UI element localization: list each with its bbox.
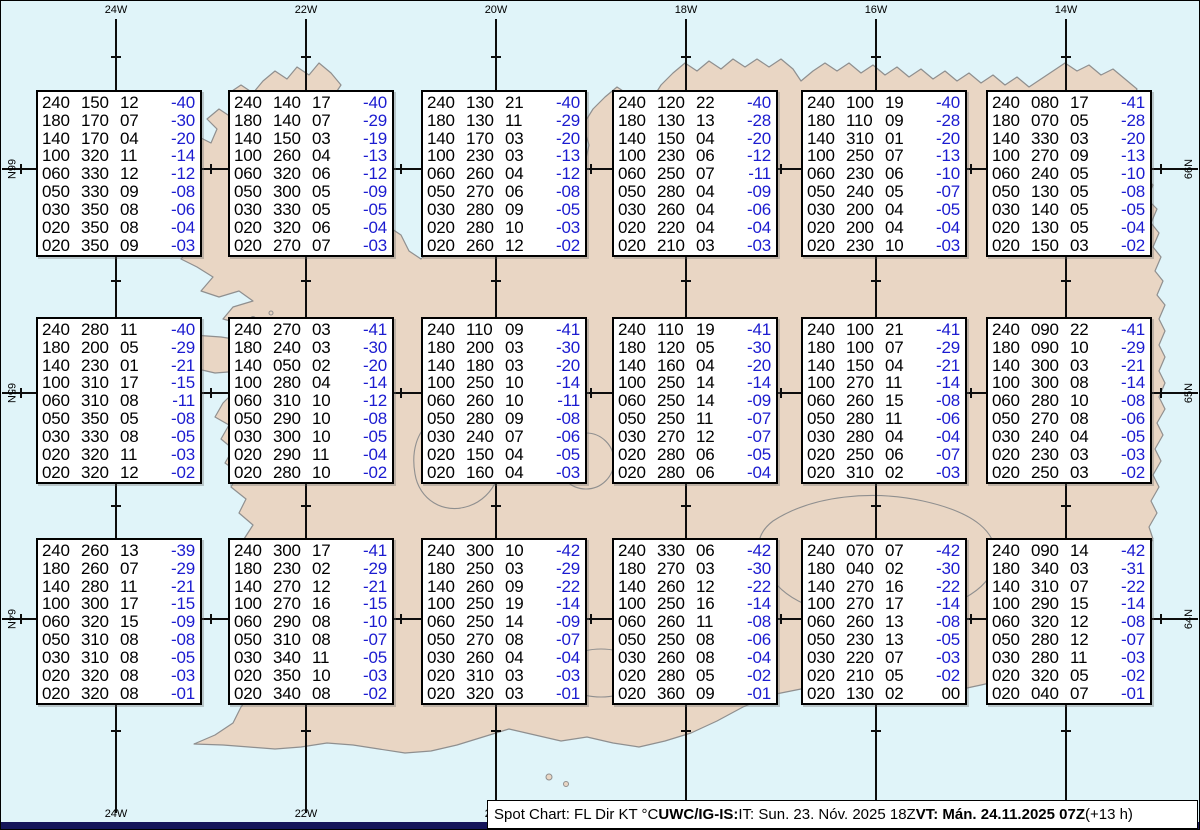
wind-speed-kt: 07	[885, 649, 916, 666]
wind-speed-kt: 08	[120, 428, 151, 445]
temperature-c: -03	[727, 237, 771, 254]
temperature-c: -04	[727, 464, 771, 481]
wind-direction: 320	[81, 685, 120, 702]
temperature-c: -22	[727, 578, 771, 595]
spot-row: 05035005-08	[42, 410, 195, 427]
temperature-c: -11	[151, 392, 195, 409]
flight-level: 060	[42, 613, 81, 630]
spot-row: 03028004-04	[807, 428, 960, 445]
spot-row: 14027012-21	[234, 578, 387, 595]
spot-row: 24033006-42	[618, 542, 771, 559]
flight-level: 180	[807, 339, 846, 356]
wind-speed-kt: 12	[696, 428, 727, 445]
flight-level: 060	[992, 392, 1031, 409]
wind-speed-kt: 04	[312, 147, 343, 164]
temperature-c: -06	[1101, 410, 1145, 427]
wind-speed-kt: 19	[885, 94, 916, 111]
flight-level: 060	[234, 165, 273, 182]
flight-level: 020	[42, 237, 81, 254]
wind-direction: 040	[846, 560, 885, 577]
wind-speed-kt: 05	[120, 410, 151, 427]
spot-row: 10023003-13	[427, 147, 580, 164]
spot-row: 24008017-41	[992, 94, 1145, 111]
flight-level: 100	[807, 147, 846, 164]
wind-speed-kt: 03	[505, 560, 536, 577]
flight-level: 050	[992, 183, 1031, 200]
wind-speed-kt: 03	[1070, 357, 1101, 374]
flight-level: 020	[427, 667, 466, 684]
wind-speed-kt: 09	[505, 201, 536, 218]
wind-direction: 280	[657, 446, 696, 463]
flight-level: 020	[992, 237, 1031, 254]
temperature-c: -08	[151, 631, 195, 648]
temperature-c: -10	[343, 613, 387, 630]
wind-speed-kt: 17	[1070, 94, 1101, 111]
chart-info-prefix: Spot Chart: FL Dir KT °C	[494, 806, 658, 823]
wind-direction: 130	[846, 685, 885, 702]
spot-row: 05023013-05	[807, 631, 960, 648]
spot-row: 24013021-40	[427, 94, 580, 111]
wind-direction: 240	[273, 339, 312, 356]
spot-row: 02021003-03	[618, 237, 771, 254]
wind-direction: 250	[466, 560, 505, 577]
spot-row: 14023001-21	[42, 357, 195, 374]
wind-speed-kt: 21	[505, 94, 536, 111]
wind-direction: 280	[466, 201, 505, 218]
flight-level: 180	[427, 560, 466, 577]
wind-direction: 090	[1031, 339, 1070, 356]
temperature-c: -08	[536, 410, 580, 427]
wind-speed-kt: 08	[120, 392, 151, 409]
flight-level: 180	[807, 560, 846, 577]
flight-level: 140	[807, 357, 846, 374]
temperature-c: -15	[343, 595, 387, 612]
wind-direction: 350	[81, 237, 120, 254]
flight-level: 060	[42, 165, 81, 182]
wind-direction: 130	[466, 94, 505, 111]
temperature-c: -07	[1101, 631, 1145, 648]
wind-direction: 250	[466, 613, 505, 630]
wind-direction: 140	[273, 112, 312, 129]
spot-row: 02032008-03	[42, 667, 195, 684]
spot-row: 03033005-05	[234, 201, 387, 218]
spot-row: 18013011-29	[427, 112, 580, 129]
spot-row: 03028009-05	[427, 201, 580, 218]
spot-table: 24007007-4218004002-3014027016-221002701…	[801, 538, 967, 705]
flight-level: 060	[42, 392, 81, 409]
flight-level: 100	[992, 595, 1031, 612]
wind-speed-kt: 08	[1070, 374, 1101, 391]
wind-speed-kt: 14	[696, 374, 727, 391]
wind-speed-kt: 07	[885, 147, 916, 164]
spot-table: 24010019-4018011009-2814031001-201002500…	[801, 90, 967, 257]
wind-direction: 270	[846, 374, 885, 391]
spot-table: 24009022-4118009010-2914030003-211003000…	[986, 317, 1152, 484]
spot-row: 03030010-05	[234, 428, 387, 445]
wind-speed-kt: 03	[505, 130, 536, 147]
wind-speed-kt: 09	[120, 183, 151, 200]
wind-speed-kt: 03	[505, 339, 536, 356]
spot-row: 06024005-10	[992, 165, 1145, 182]
temperature-c: -14	[536, 374, 580, 391]
wind-direction: 350	[81, 410, 120, 427]
temperature-c: -13	[1101, 147, 1145, 164]
temperature-c: -13	[343, 147, 387, 164]
spot-tables-layer: 24015012-4018017007-3014017004-201003201…	[1, 1, 1199, 829]
flight-level: 100	[427, 147, 466, 164]
wind-speed-kt: 09	[505, 321, 536, 338]
wind-speed-kt: 07	[1070, 685, 1101, 702]
spot-row: 18007005-28	[992, 112, 1145, 129]
spot-table: 24027003-4118024003-3014005002-201002800…	[228, 317, 394, 484]
wind-direction: 220	[657, 219, 696, 236]
wind-speed-kt: 07	[312, 112, 343, 129]
wind-speed-kt: 07	[312, 237, 343, 254]
temperature-c: -09	[727, 392, 771, 409]
flight-level: 240	[992, 542, 1031, 559]
spot-row: 10032011-14	[42, 147, 195, 164]
spot-row: 18020003-30	[427, 339, 580, 356]
spot-row: 02031002-03	[807, 464, 960, 481]
temperature-c: -30	[151, 112, 195, 129]
wind-direction: 160	[466, 464, 505, 481]
spot-row: 03033008-05	[42, 428, 195, 445]
wind-speed-kt: 12	[1070, 613, 1101, 630]
flight-level: 050	[42, 631, 81, 648]
wind-speed-kt: 17	[120, 374, 151, 391]
wind-speed-kt: 14	[696, 392, 727, 409]
flight-level: 240	[427, 321, 466, 338]
spot-row: 06028010-08	[992, 392, 1145, 409]
temperature-c: -14	[1101, 374, 1145, 391]
temperature-c: -07	[343, 631, 387, 648]
flight-level: 050	[992, 631, 1031, 648]
flight-level: 100	[992, 147, 1031, 164]
wind-speed-kt: 03	[312, 339, 343, 356]
flight-level: 140	[618, 357, 657, 374]
temperature-c: -14	[727, 374, 771, 391]
temperature-c: -07	[916, 183, 960, 200]
temperature-c: -07	[916, 446, 960, 463]
flight-level: 060	[807, 392, 846, 409]
spot-row: 06025014-09	[427, 613, 580, 630]
flight-level: 030	[992, 201, 1031, 218]
flight-level: 180	[618, 560, 657, 577]
wind-speed-kt: 10	[312, 464, 343, 481]
wind-speed-kt: 14	[505, 613, 536, 630]
wind-direction: 170	[81, 112, 120, 129]
wind-direction: 290	[1031, 595, 1070, 612]
wind-speed-kt: 05	[885, 667, 916, 684]
spot-row: 24014017-40	[234, 94, 387, 111]
spot-row: 02025006-07	[807, 446, 960, 463]
spot-row: 10027016-15	[234, 595, 387, 612]
wind-speed-kt: 04	[885, 219, 916, 236]
wind-speed-kt: 08	[696, 649, 727, 666]
spot-row: 03031008-05	[42, 649, 195, 666]
flight-level: 240	[42, 321, 81, 338]
temperature-c: -03	[916, 464, 960, 481]
temperature-c: -08	[151, 410, 195, 427]
flight-level: 050	[618, 631, 657, 648]
spot-row: 03034011-05	[234, 649, 387, 666]
wind-direction: 330	[81, 183, 120, 200]
wind-direction: 260	[846, 392, 885, 409]
flight-level: 030	[618, 649, 657, 666]
spot-row: 24009014-42	[992, 542, 1145, 559]
wind-direction: 340	[273, 685, 312, 702]
wind-speed-kt: 13	[885, 631, 916, 648]
wind-speed-kt: 21	[885, 321, 916, 338]
wind-speed-kt: 12	[312, 578, 343, 595]
chart-info-valid-time: VT: Mán. 24.11.2025 07Z	[916, 806, 1085, 823]
wind-direction: 280	[1031, 649, 1070, 666]
wind-direction: 210	[846, 667, 885, 684]
wind-speed-kt: 03	[1070, 237, 1101, 254]
temperature-c: -15	[151, 595, 195, 612]
spot-row: 05027008-06	[992, 410, 1145, 427]
spot-row: 02016004-03	[427, 464, 580, 481]
wind-speed-kt: 03	[696, 560, 727, 577]
temperature-c: -22	[1101, 578, 1145, 595]
temperature-c: -40	[536, 94, 580, 111]
temperature-c: -12	[343, 392, 387, 409]
wind-direction: 230	[1031, 446, 1070, 463]
spot-row: 10025019-14	[427, 595, 580, 612]
wind-speed-kt: 03	[696, 237, 727, 254]
flight-level: 100	[427, 374, 466, 391]
wind-direction: 270	[846, 578, 885, 595]
flight-level: 030	[42, 201, 81, 218]
spot-row: 03024007-06	[427, 428, 580, 445]
temperature-c: -40	[727, 94, 771, 111]
temperature-c: -12	[536, 165, 580, 182]
temperature-c: -03	[343, 667, 387, 684]
wind-speed-kt: 09	[120, 237, 151, 254]
spot-table: 24030010-4218025003-2914026009-221002501…	[421, 538, 587, 705]
wind-direction: 300	[273, 542, 312, 559]
wind-direction: 270	[273, 595, 312, 612]
flight-level: 050	[807, 631, 846, 648]
wind-speed-kt: 15	[1070, 595, 1101, 612]
wind-direction: 150	[657, 130, 696, 147]
temperature-c: -03	[536, 464, 580, 481]
wind-speed-kt: 04	[696, 183, 727, 200]
temperature-c: -04	[343, 219, 387, 236]
flight-level: 100	[618, 374, 657, 391]
wind-speed-kt: 10	[1070, 392, 1101, 409]
temperature-c: -10	[1101, 165, 1145, 182]
temperature-c: -06	[727, 631, 771, 648]
temperature-c: -41	[536, 321, 580, 338]
flight-level: 020	[992, 219, 1031, 236]
wind-speed-kt: 17	[120, 595, 151, 612]
wind-speed-kt: 05	[1070, 667, 1101, 684]
wind-direction: 260	[81, 560, 120, 577]
wind-direction: 240	[846, 183, 885, 200]
wind-speed-kt: 03	[1070, 464, 1101, 481]
spot-row: 14030003-21	[992, 357, 1145, 374]
temperature-c: -29	[1101, 339, 1145, 356]
spot-row: 05029010-08	[234, 410, 387, 427]
spot-row: 03035008-06	[42, 201, 195, 218]
flight-level: 180	[42, 112, 81, 129]
spot-row: 06025014-09	[618, 392, 771, 409]
flight-level: 180	[427, 339, 466, 356]
flight-level: 030	[427, 649, 466, 666]
flight-level: 140	[234, 357, 273, 374]
temperature-c: 00	[916, 685, 960, 702]
wind-speed-kt: 04	[505, 446, 536, 463]
wind-direction: 330	[1031, 130, 1070, 147]
wind-direction: 310	[81, 392, 120, 409]
wind-direction: 250	[1031, 464, 1070, 481]
spot-row: 02027007-03	[234, 237, 387, 254]
spot-row: 05013005-08	[992, 183, 1145, 200]
temperature-c: -01	[151, 685, 195, 702]
spot-row: 18013013-28	[618, 112, 771, 129]
flight-level: 050	[427, 631, 466, 648]
temperature-c: -14	[536, 595, 580, 612]
wind-speed-kt: 17	[312, 94, 343, 111]
wind-direction: 120	[657, 94, 696, 111]
flight-level: 020	[618, 219, 657, 236]
spot-row: 24011009-41	[427, 321, 580, 338]
temperature-c: -39	[151, 542, 195, 559]
wind-speed-kt: 05	[885, 183, 916, 200]
wind-speed-kt: 13	[696, 112, 727, 129]
wind-direction: 260	[81, 542, 120, 559]
wind-speed-kt: 08	[120, 631, 151, 648]
spot-row: 02031003-03	[427, 667, 580, 684]
wind-direction: 150	[273, 130, 312, 147]
temperature-c: -06	[151, 201, 195, 218]
flight-level: 140	[42, 357, 81, 374]
wind-speed-kt: 12	[120, 94, 151, 111]
wind-speed-kt: 07	[885, 542, 916, 559]
flight-level: 060	[992, 613, 1031, 630]
spot-table: 24013021-4018013011-2914017003-201002300…	[421, 90, 587, 257]
wind-direction: 070	[1031, 112, 1070, 129]
wind-direction: 280	[273, 374, 312, 391]
spot-row: 02032006-04	[234, 219, 387, 236]
temperature-c: -01	[1101, 685, 1145, 702]
flight-level: 060	[427, 613, 466, 630]
spot-row: 06026004-12	[427, 165, 580, 182]
flight-level: 050	[234, 183, 273, 200]
flight-level: 140	[427, 357, 466, 374]
spot-row: 02035010-03	[234, 667, 387, 684]
wind-speed-kt: 17	[885, 595, 916, 612]
wind-speed-kt: 08	[1070, 410, 1101, 427]
wind-speed-kt: 10	[312, 392, 343, 409]
spot-row: 18010007-29	[807, 339, 960, 356]
spot-row: 05030005-09	[234, 183, 387, 200]
flight-level: 020	[807, 685, 846, 702]
temperature-c: -12	[727, 147, 771, 164]
temperature-c: -20	[727, 357, 771, 374]
flight-level: 240	[618, 542, 657, 559]
temperature-c: -05	[151, 649, 195, 666]
flight-level: 060	[427, 392, 466, 409]
temperature-c: -29	[916, 339, 960, 356]
wind-direction: 150	[81, 94, 120, 111]
flight-level: 020	[427, 685, 466, 702]
wind-direction: 330	[81, 428, 120, 445]
temperature-c: -11	[536, 392, 580, 409]
wind-direction: 280	[1031, 631, 1070, 648]
flight-level: 140	[427, 130, 466, 147]
wind-direction: 290	[273, 410, 312, 427]
temperature-c: -29	[151, 560, 195, 577]
flight-level: 100	[427, 595, 466, 612]
wind-speed-kt: 11	[120, 321, 151, 338]
spot-row: 18009010-29	[992, 339, 1145, 356]
temperature-c: -04	[916, 428, 960, 445]
temperature-c: -20	[916, 130, 960, 147]
wind-direction: 280	[846, 428, 885, 445]
temperature-c: -13	[536, 147, 580, 164]
wind-direction: 270	[466, 631, 505, 648]
wind-direction: 270	[657, 560, 696, 577]
wind-speed-kt: 07	[696, 165, 727, 182]
spot-row: 02013005-04	[992, 219, 1145, 236]
flight-level: 030	[618, 201, 657, 218]
spot-row: 02023010-03	[807, 237, 960, 254]
spot-row: 14033003-20	[992, 130, 1145, 147]
wind-speed-kt: 06	[505, 183, 536, 200]
wind-speed-kt: 03	[505, 685, 536, 702]
wind-speed-kt: 04	[885, 357, 916, 374]
flight-level: 050	[234, 631, 273, 648]
flight-level: 140	[234, 578, 273, 595]
flight-level: 240	[807, 94, 846, 111]
wind-speed-kt: 03	[505, 147, 536, 164]
spot-row: 06026015-08	[807, 392, 960, 409]
spot-row: 02028005-02	[618, 667, 771, 684]
wind-direction: 350	[81, 201, 120, 218]
flight-level: 180	[992, 112, 1031, 129]
wind-speed-kt: 07	[120, 560, 151, 577]
wind-direction: 310	[81, 649, 120, 666]
flight-level: 030	[807, 428, 846, 445]
spot-row: 10029015-14	[992, 595, 1145, 612]
temperature-c: -01	[727, 685, 771, 702]
temperature-c: -02	[916, 667, 960, 684]
spot-table: 24010021-4118010007-2914015004-211002701…	[801, 317, 967, 484]
wind-direction: 080	[1031, 94, 1070, 111]
spot-table: 24014017-4018014007-2914015003-191002600…	[228, 90, 394, 257]
flight-level: 060	[992, 165, 1031, 182]
temperature-c: -09	[536, 613, 580, 630]
spot-row: 06031010-12	[234, 392, 387, 409]
spot-row: 18011009-28	[807, 112, 960, 129]
flight-level: 180	[992, 339, 1031, 356]
flight-level: 050	[807, 183, 846, 200]
flight-level: 030	[992, 428, 1031, 445]
wind-speed-kt: 11	[696, 613, 727, 630]
spot-row: 06023006-10	[807, 165, 960, 182]
temperature-c: -21	[1101, 357, 1145, 374]
temperature-c: -05	[1101, 428, 1145, 445]
flight-level: 050	[992, 410, 1031, 427]
flight-level: 240	[234, 542, 273, 559]
spot-row: 03027012-07	[618, 428, 771, 445]
wind-direction: 320	[273, 165, 312, 182]
wind-speed-kt: 10	[312, 410, 343, 427]
wind-speed-kt: 03	[1070, 446, 1101, 463]
temperature-c: -40	[343, 94, 387, 111]
